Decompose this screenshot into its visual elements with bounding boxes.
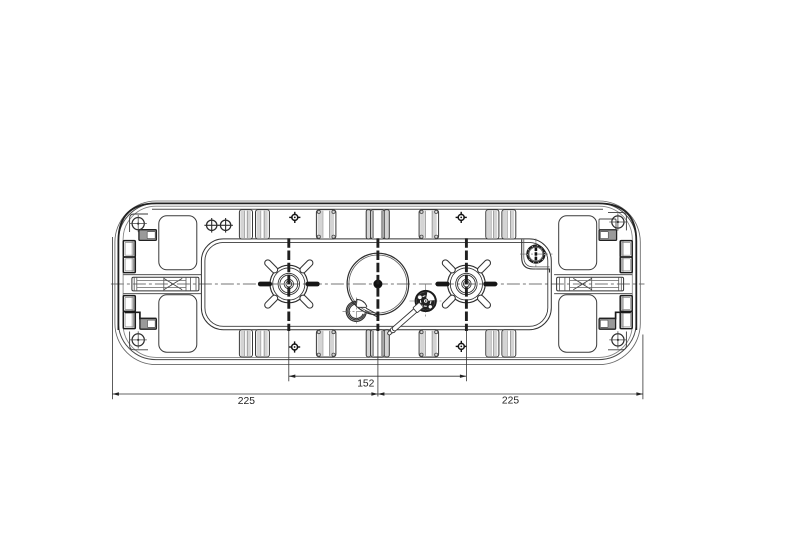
- svg-text:225: 225: [238, 396, 255, 407]
- svg-text:225: 225: [502, 395, 519, 406]
- svg-text:152: 152: [357, 379, 374, 390]
